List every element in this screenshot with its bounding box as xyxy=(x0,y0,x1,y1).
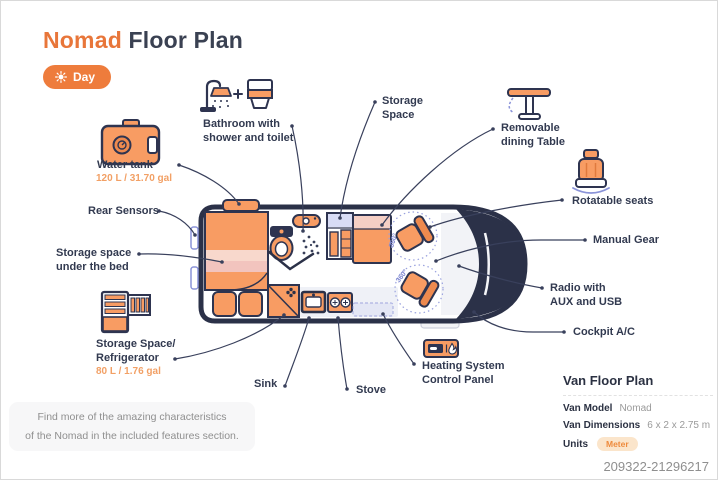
dining-bench xyxy=(353,215,391,263)
label-radio: Radio with AUX and USB xyxy=(550,281,622,310)
label-manual-gear: Manual Gear xyxy=(593,233,659,247)
label-storage-space: Storage Space xyxy=(382,94,423,123)
label-rear-sensors: Rear Sensors xyxy=(88,204,159,218)
spec-row-dimensions: Van Dimensions 6 x 2 x 2.75 m xyxy=(563,420,713,431)
shower-icon xyxy=(200,81,231,112)
watermark-id: 209322-21296217 xyxy=(603,459,709,474)
label-water-tank: Water tank xyxy=(97,158,153,172)
rear-sensor-bar xyxy=(191,267,198,289)
toilet-icon xyxy=(248,80,272,108)
sink-unit xyxy=(302,292,325,312)
label-removable-table: Removable dining Table xyxy=(501,121,565,150)
bed xyxy=(205,212,268,290)
units-badge[interactable]: Meter xyxy=(597,437,638,451)
label-storage-refrigerator: Storage Space/ Refrigerator xyxy=(96,337,175,366)
label-cockpit-ac: Cockpit A/C xyxy=(573,325,635,339)
plus-icon xyxy=(234,90,242,98)
specs-heading: Van Floor Plan xyxy=(563,373,713,396)
label-stove: Stove xyxy=(356,383,386,397)
features-note: Find more of the amazing characteristics… xyxy=(9,402,255,451)
spec-row-model: Van Model Nomad xyxy=(563,403,713,414)
label-sink: Sink xyxy=(254,377,277,391)
capacity-refrigerator: 80 L / 1.76 gal xyxy=(96,366,161,379)
heating-panel-zone xyxy=(353,303,393,316)
spec-row-units: Units Meter xyxy=(563,437,713,451)
roof-water-tank xyxy=(223,200,259,211)
capacity-water-tank: 120 L / 31.70 gal xyxy=(96,173,172,186)
floor-plan-page: Nomad Floor Plan Day xyxy=(0,0,718,480)
label-storage-under-bed: Storage space under the bed xyxy=(56,246,131,275)
corner-cabinet xyxy=(268,285,299,317)
wardrobe xyxy=(327,213,353,259)
label-bathroom: Bathroom with shower and toilet xyxy=(203,117,293,146)
van-specs-panel: Van Floor Plan Van Model Nomad Van Dimen… xyxy=(563,373,713,451)
dining-table-icon xyxy=(508,89,550,119)
heating-panel-icon xyxy=(424,340,458,357)
label-heating: Heating System Control Panel xyxy=(422,359,505,388)
label-rotatable-seats: Rotatable seats xyxy=(572,194,653,208)
bathroom-vanity xyxy=(293,215,320,227)
stove-unit xyxy=(328,293,352,312)
rotatable-seat-icon xyxy=(573,150,609,193)
refrigerator-icon xyxy=(102,292,150,332)
